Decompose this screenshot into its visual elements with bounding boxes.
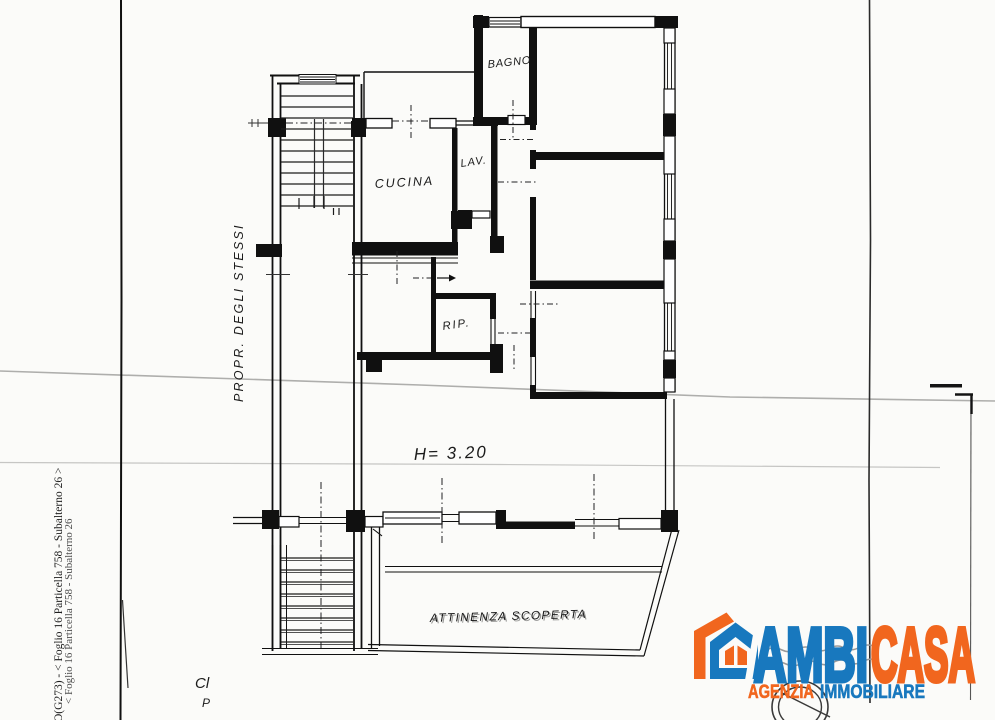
svg-text:Cl: Cl bbox=[195, 675, 210, 692]
svg-text:PROPR. DEGLI STESSI: PROPR. DEGLI STESSI bbox=[232, 223, 246, 402]
svg-text:H= 3.20: H= 3.20 bbox=[413, 442, 488, 464]
svg-text:P: P bbox=[202, 696, 210, 710]
svg-text:AGENZIA: AGENZIA bbox=[748, 682, 814, 703]
svg-text:< Foglio 16 Particella 758 - S: < Foglio 16 Particella 758 - Subalterno … bbox=[63, 518, 75, 704]
svg-text:IMMOBILIARE: IMMOBILIARE bbox=[820, 682, 925, 703]
